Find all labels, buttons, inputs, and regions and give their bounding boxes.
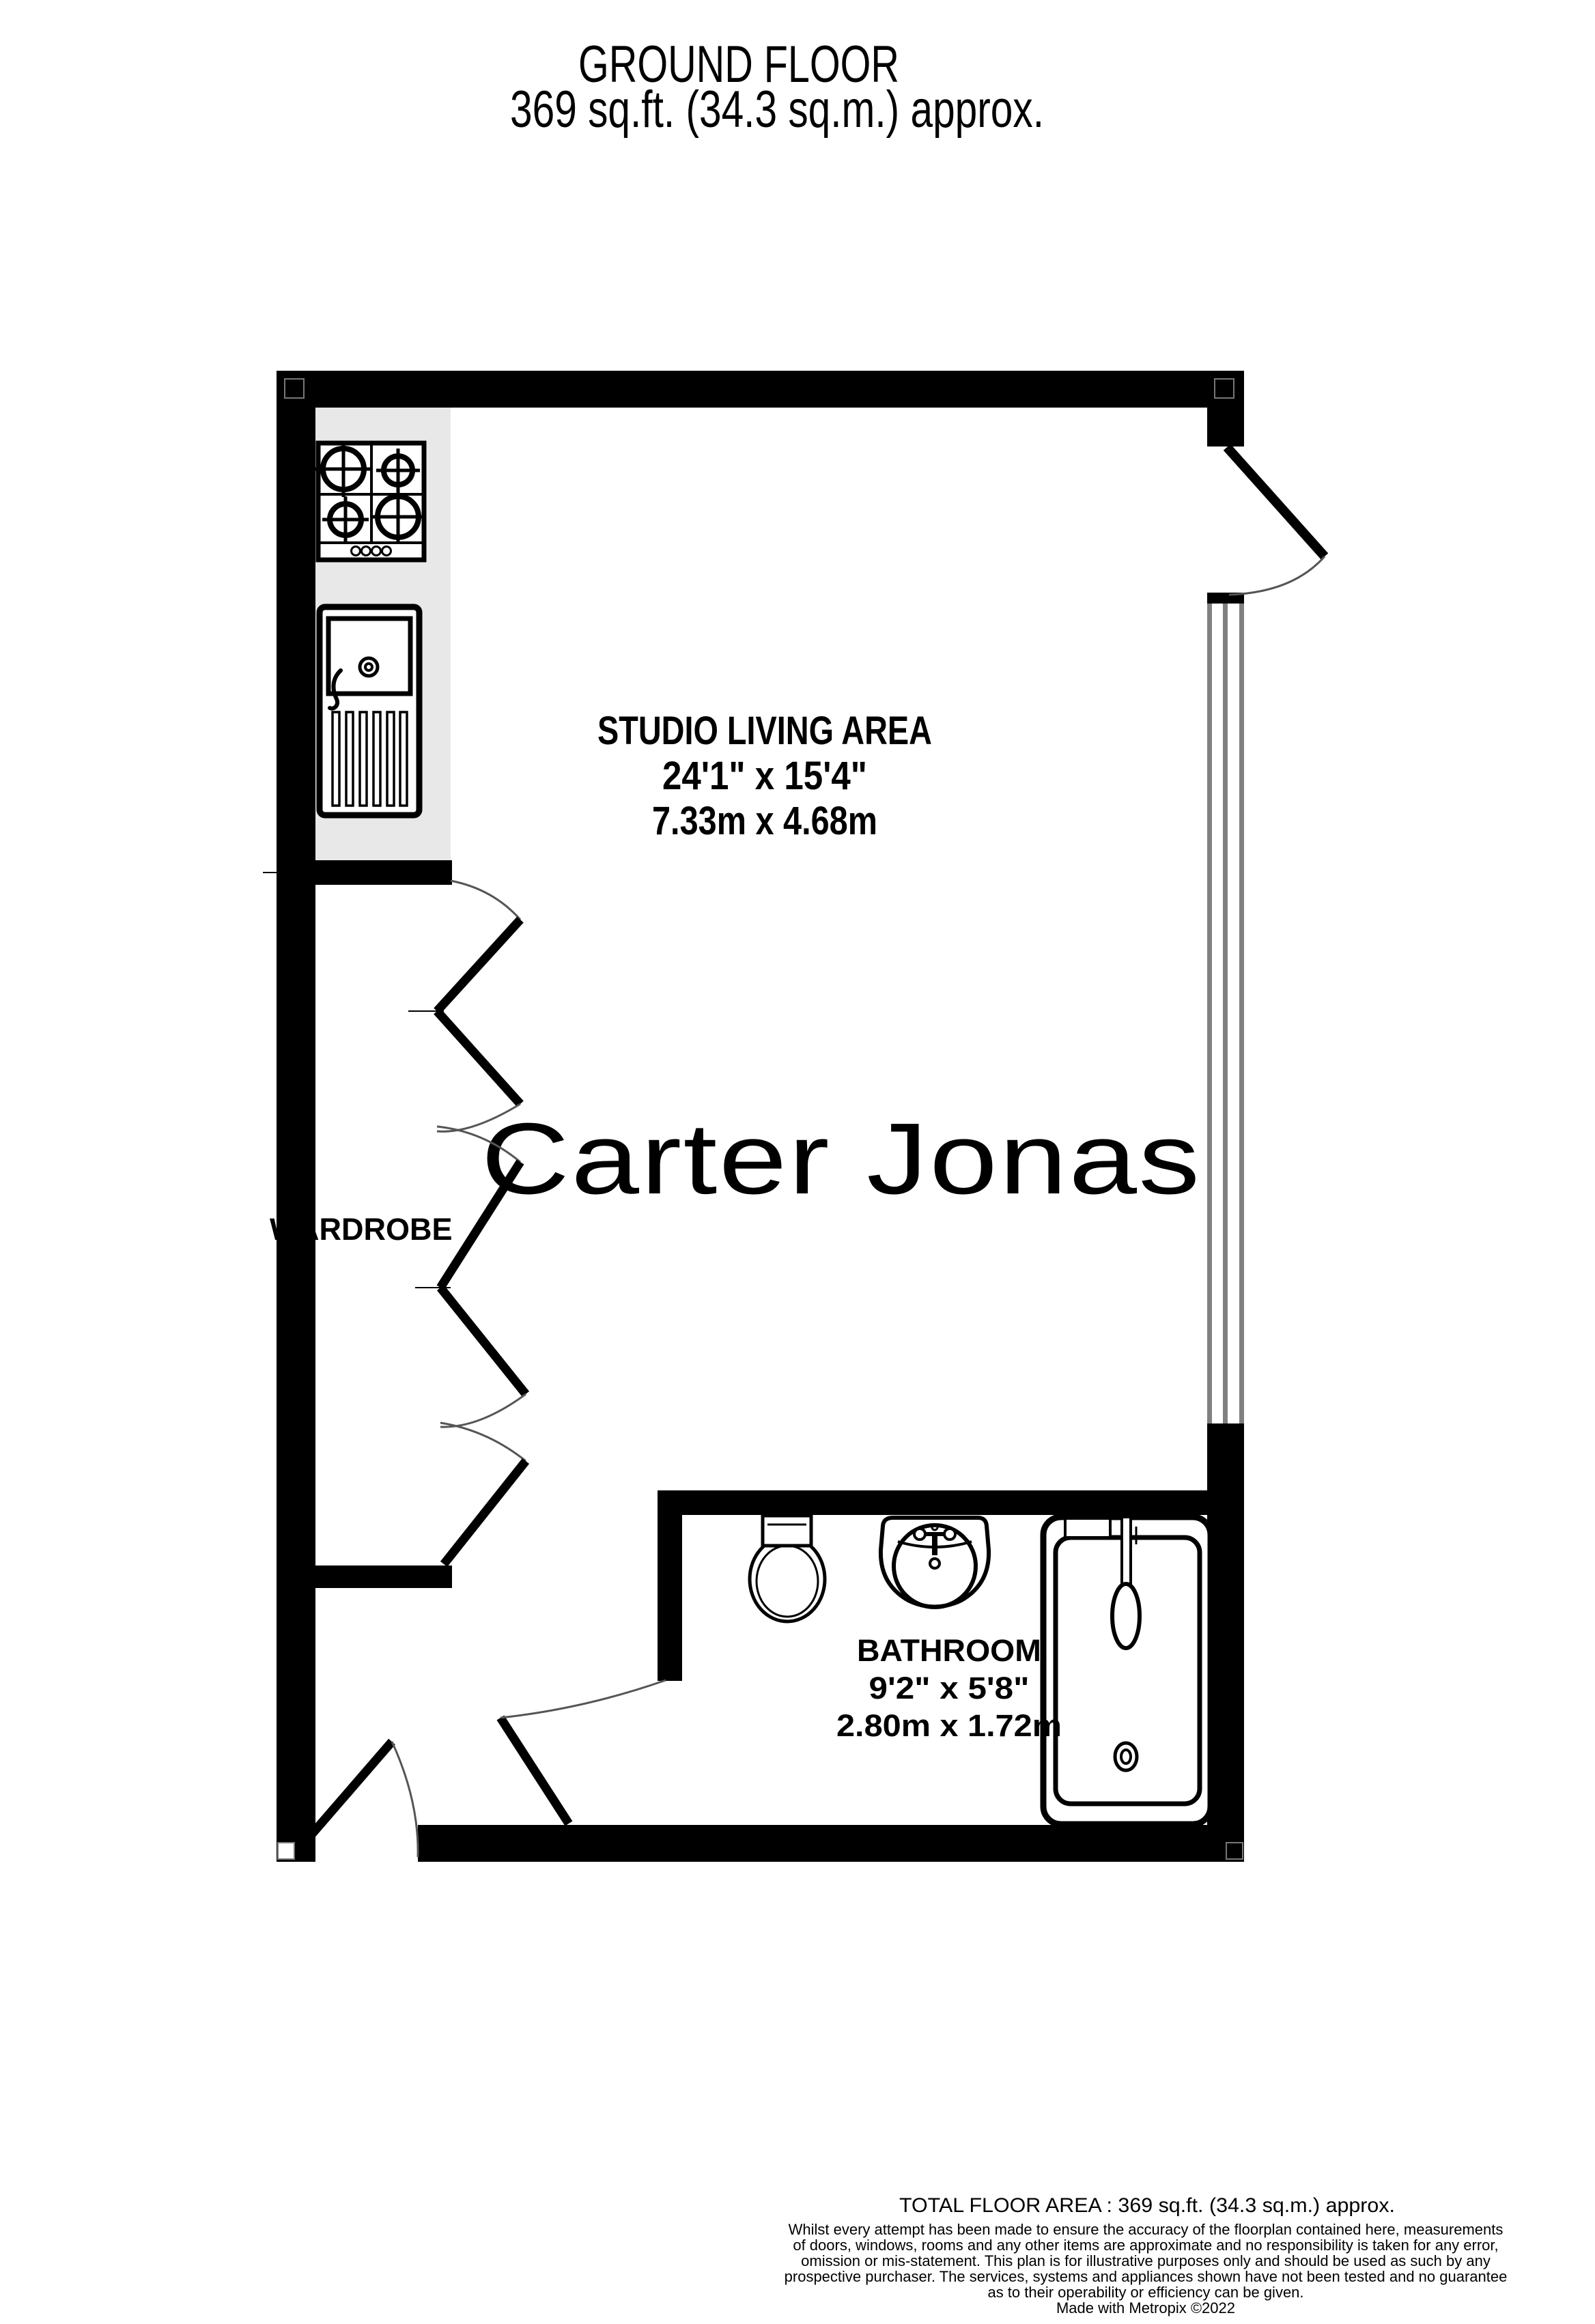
bathroom-room-label: BATHROOM	[857, 1633, 1041, 1668]
footer: TOTAL FLOOR AREA : 369 sq.ft. (34.3 sq.m…	[785, 2194, 1508, 2316]
entrance-door-swing-icon	[1227, 447, 1325, 595]
bathroom-door-swing-icon	[500, 1680, 666, 1824]
wall	[277, 371, 315, 1862]
kitchen-sink-icon	[320, 607, 419, 815]
disclaimer-line: Whilst every attempt has been made to en…	[789, 2221, 1504, 2238]
wall	[1207, 408, 1244, 447]
wall	[418, 1825, 1244, 1862]
bathroom-dims-imperial: 9'2" x 5'8"	[869, 1671, 1030, 1705]
bathroom-dims-metric: 2.80m x 1.72m	[836, 1708, 1062, 1743]
studio-room-label: STUDIO LIVING AREA	[597, 709, 932, 753]
front-door-swing-icon	[309, 1742, 418, 1857]
disclaimer-line: as to their operability or efficiency ca…	[987, 2284, 1303, 2301]
toilet-icon	[750, 1516, 825, 1621]
floorplan-page: GROUND FLOOR 369 sq.ft. (34.3 sq.m.) app…	[0, 0, 1595, 2324]
wall	[314, 1565, 452, 1588]
brand-watermark: Carter Jonas	[481, 1103, 1202, 1215]
hand-basin-icon	[881, 1518, 989, 1607]
window	[1207, 604, 1244, 1423]
studio-room-label-group: STUDIO LIVING AREA 24'1" x 15'4" 7.33m x…	[597, 709, 932, 843]
disclaimer-line: omission or mis-statement. This plan is …	[801, 2252, 1491, 2269]
floorplan-canvas: GROUND FLOOR 369 sq.ft. (34.3 sq.m.) app…	[0, 0, 1595, 2324]
total-floor-area: TOTAL FLOOR AREA : 369 sq.ft. (34.3 sq.m…	[899, 2194, 1395, 2217]
disclaimer-line: of doors, windows, rooms and any other i…	[793, 2237, 1498, 2254]
metropix-credit: Made with Metropix ©2022	[1056, 2299, 1235, 2316]
bathroom-room-label-group: BATHROOM 9'2" x 5'8" 2.80m x 1.72m	[836, 1633, 1062, 1743]
doorway-notch	[278, 1843, 294, 1859]
disclaimer-line: prospective purchaser. The services, sys…	[785, 2268, 1508, 2285]
page-subtitle: 369 sq.ft. (34.3 sq.m.) approx.	[510, 81, 1044, 139]
gas-hob-icon	[315, 441, 424, 560]
studio-dims-imperial: 24'1" x 15'4"	[662, 754, 867, 798]
wall	[277, 371, 1244, 408]
wall	[658, 1490, 1209, 1515]
bathtub-icon	[1043, 1517, 1211, 1824]
wall	[658, 1514, 682, 1681]
studio-dims-metric: 7.33m x 4.68m	[652, 799, 877, 843]
wall	[314, 860, 452, 885]
